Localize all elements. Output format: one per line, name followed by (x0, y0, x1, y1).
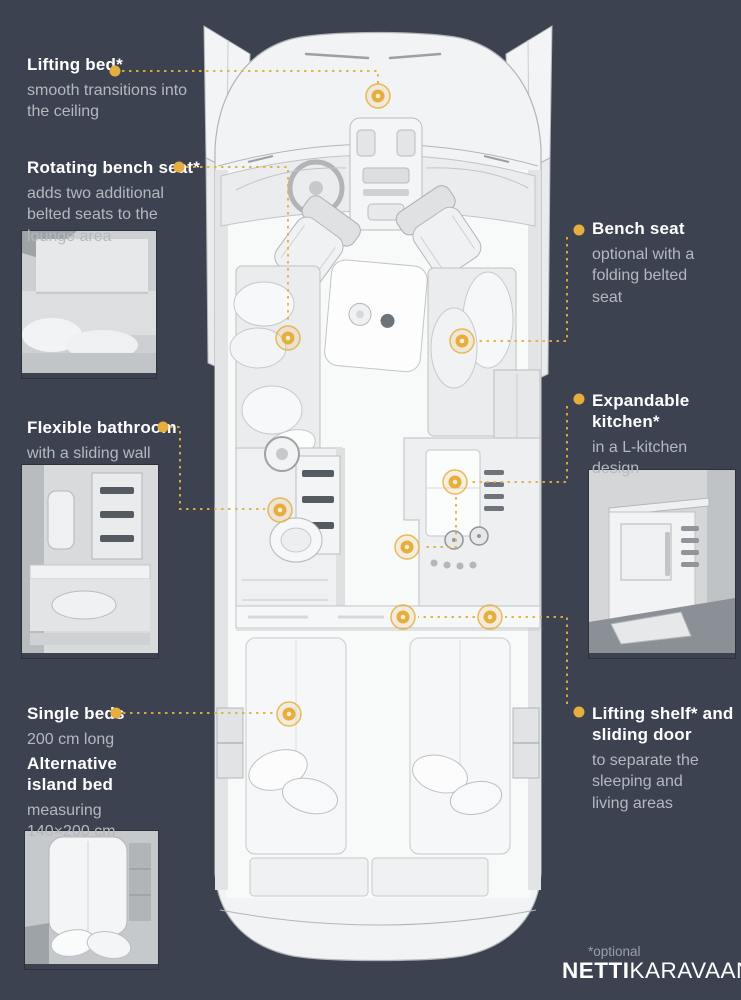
van-floorplan-drawing (188, 18, 568, 963)
callout-title: Lifting shelf* and sliding door (592, 703, 740, 745)
callout-body: measuring 140×200 cm (27, 800, 149, 843)
callout-single-beds: Single beds 200 cm long (27, 703, 187, 750)
callout-title: Bench seat (592, 218, 710, 239)
callout-body: optional with a folding belted seat (592, 244, 710, 308)
partition-shelf (236, 606, 540, 630)
callout-title: Single beds (27, 703, 187, 724)
infographic-page: Lifting bed* smooth transitions into the… (0, 0, 741, 1000)
callout-title: Lifting bed* (27, 54, 197, 75)
callout-expandable-kitchen: Expandable kitchen* in a L-kitchen desig… (592, 390, 714, 480)
photo-kitchen-thumbnail (589, 470, 735, 658)
callout-rotating-bench-seat: Rotating bench seat* adds two additional… (27, 157, 217, 247)
callout-flexible-bathroom: Flexible bathroom with a sliding wall (27, 417, 197, 464)
brand-logo-light: KARAVAANI (630, 958, 741, 983)
callout-title: Alternative island bed (27, 753, 149, 795)
callout-title: Flexible bathroom (27, 417, 197, 438)
label-dot-lifting-shelf (574, 707, 585, 718)
callout-bench-seat: Bench seat optional with a folding belte… (592, 218, 710, 308)
brand-logo: NETTIKARAVAANI (562, 958, 741, 984)
callout-body: to separate the sleeping and living area… (592, 750, 714, 814)
callout-body: with a sliding wall (27, 443, 197, 464)
bathroom (236, 437, 345, 618)
kitchen-cabinet (426, 450, 480, 536)
callout-body: in a L-kitchen design (592, 437, 714, 480)
callout-body: 200 cm long (27, 729, 187, 750)
kitchen (404, 438, 540, 618)
photo-island-bed-thumbnail (25, 831, 158, 969)
dinette-table (323, 259, 428, 373)
label-dot-expandable-kitchen (574, 394, 585, 405)
photo-lounge-thumbnail (22, 231, 156, 378)
callout-title: Rotating bench seat* (27, 157, 217, 178)
van-floorplan (188, 18, 568, 963)
mattress-panel (372, 858, 488, 896)
mattress-panel (250, 858, 368, 896)
label-dot-bench-seat (574, 225, 585, 236)
optional-footnote: *optional (588, 944, 641, 959)
callout-title: Expandable kitchen* (592, 390, 714, 432)
brand-logo-bold: NETTI (562, 958, 630, 983)
callout-lifting-bed: Lifting bed* smooth transitions into the… (27, 54, 197, 123)
photo-bathroom-thumbnail (22, 465, 158, 658)
callout-body: adds two additional belted seats to the … (27, 183, 189, 247)
callout-lifting-shelf: Lifting shelf* and sliding door to separ… (592, 703, 740, 814)
callout-body: smooth transitions into the ceiling (27, 80, 197, 123)
callout-alternative-island-bed: Alternative island bed measuring 140×200… (27, 753, 149, 843)
